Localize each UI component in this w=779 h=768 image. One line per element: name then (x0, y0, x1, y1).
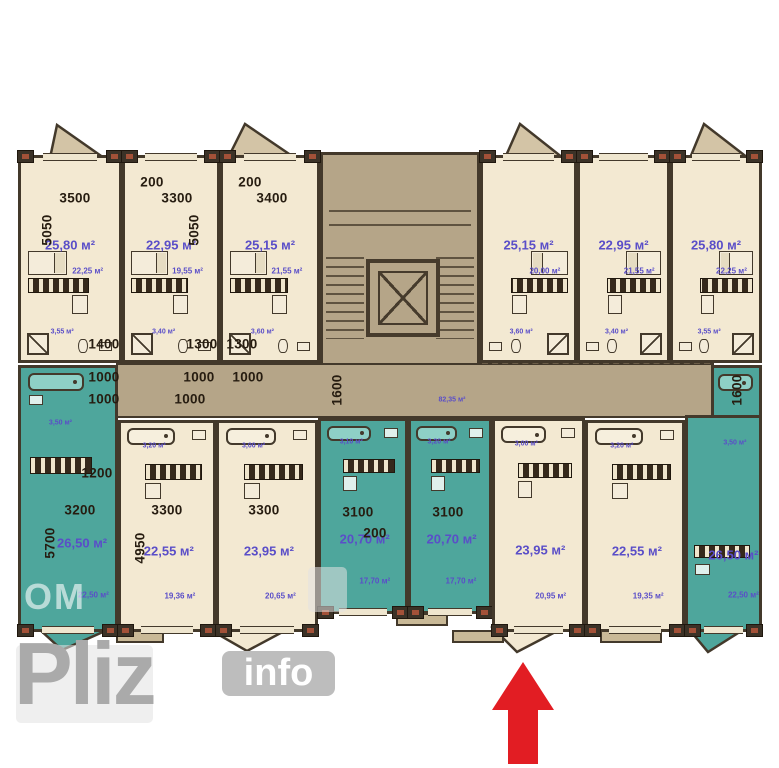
bath-label: 3,40 м² (605, 328, 628, 335)
apartment-unit-tl-3[interactable]: 25,15 м²21,55 м²3,60 м² (220, 155, 320, 363)
sub-label: 20,65 м² (265, 592, 296, 601)
window-icon (145, 153, 197, 161)
apartment-unit-tr-2[interactable]: 22,95 м²21,55 м²3,40 м² (577, 155, 670, 363)
area-label: 25,15 м² (245, 237, 295, 252)
window-icon (503, 153, 554, 161)
stairs-icon (436, 257, 474, 339)
dimension-label: 1200 (81, 466, 112, 481)
bath-label: 3,55 м² (698, 328, 721, 335)
bath-label: 3,20 м² (428, 438, 451, 445)
dimension-label: 200 (140, 175, 163, 190)
window-icon (609, 626, 662, 634)
dimension-label: 5050 (187, 214, 202, 245)
dimension-label: 3100 (432, 505, 463, 520)
apartment-unit-tr-3[interactable]: 25,80 м²22,25 м²3,55 м² (670, 155, 762, 363)
watermark-info-badge: info (222, 651, 335, 696)
area-label: 22,55 м² (144, 543, 194, 558)
dimension-label: 200 (363, 526, 386, 541)
bath-label: 3,60 м² (510, 328, 533, 335)
dimension-label: 5050 (40, 214, 55, 245)
bath-label: 3,20 м² (143, 442, 166, 449)
window-icon (692, 153, 740, 161)
apartment-unit-b-6[interactable]: 23,95 м²20,95 м²3,00 м² (492, 418, 585, 632)
stairs-icon (326, 257, 364, 339)
area-label: 26,50 м² (708, 548, 758, 563)
sub-label: 21,55 м² (271, 267, 302, 276)
area-label: 26,50 м² (57, 535, 107, 550)
apartment-unit-b-2[interactable]: 22,55 м²19,36 м²3,20 м² (118, 420, 216, 632)
sub-label: 19,36 м² (164, 592, 195, 601)
dimension-label: 1300 (226, 337, 257, 352)
bath-label: 3,00 м² (515, 440, 538, 447)
dimension-label: 1400 (88, 337, 119, 352)
area-label: 25,15 м² (503, 237, 553, 252)
window-icon (514, 626, 563, 634)
elevator-icon (366, 259, 440, 337)
floor-plan: 82,35 м² OM Pliz info 25,80 м²22,25 м²3,… (0, 0, 779, 768)
bath-label: 3,20 м² (610, 442, 633, 449)
window-icon (240, 626, 294, 634)
dimension-label: 1300 (186, 337, 217, 352)
dimension-label: 1000 (183, 370, 214, 385)
bath-label: 3,55 м² (51, 328, 74, 335)
watermark-tile (308, 567, 347, 612)
dimension-label: 3100 (342, 505, 373, 520)
bath-label: 3,00 м² (242, 442, 265, 449)
elevator-shaft-cross-icon (378, 271, 428, 325)
dimension-label: 3300 (161, 191, 192, 206)
sub-label: 20,95 м² (535, 591, 566, 600)
sub-label: 22,25 м² (716, 267, 747, 276)
watermark-om: OM (24, 576, 86, 618)
area-label: 22,55 м² (612, 543, 662, 558)
sub-label: 19,35 м² (633, 592, 664, 601)
dimension-label: 200 (238, 175, 261, 190)
dimension-label: 4950 (133, 532, 148, 563)
area-label: 23,95 м² (515, 542, 565, 557)
dimension-label: 3300 (151, 503, 182, 518)
dimension-label: 1600 (730, 374, 745, 405)
area-label: 25,80 м² (691, 237, 741, 252)
bath-label: 3,40 м² (152, 328, 175, 335)
red-arrow (486, 660, 566, 768)
dimension-label: 3400 (256, 191, 287, 206)
area-label: 22,95 м² (598, 237, 648, 252)
dimension-label: 1000 (88, 370, 119, 385)
dimension-label: 3200 (64, 503, 95, 518)
bath-label: 3,10 м² (340, 438, 363, 445)
apartment-unit-tl-1[interactable]: 25,80 м²22,25 м²3,55 м² (18, 155, 122, 363)
stair-landing (329, 210, 471, 226)
bath-label: 3,60 м² (251, 328, 274, 335)
window-icon (599, 153, 648, 161)
sub-label: 19,55 м² (172, 267, 203, 276)
apartment-unit-b-3[interactable]: 23,95 м²20,65 м²3,00 м² (216, 420, 318, 632)
dimension-label: 1000 (88, 392, 119, 407)
window-icon (428, 608, 472, 616)
stairwell (320, 152, 480, 363)
window-icon (43, 153, 98, 161)
bath-label: 3,50 м² (723, 440, 746, 447)
dimension-label: 5700 (43, 527, 58, 558)
apartment-unit-b-7[interactable]: 22,55 м²19,35 м²3,20 м² (585, 420, 685, 632)
dimension-label: 3300 (248, 503, 279, 518)
sub-label: 17,70 м² (445, 576, 476, 585)
dimension-label: 1000 (174, 392, 205, 407)
area-label: 23,95 м² (244, 543, 294, 558)
apartment-unit-b-8[interactable]: 26,50 м²22,50 м²3,50 м² (685, 415, 762, 632)
corridor-area-label: 82,35 м² (439, 397, 466, 404)
dimension-label: 1000 (232, 370, 263, 385)
sub-label: 20,00 м² (529, 267, 560, 276)
dimension-label: 1600 (330, 374, 345, 405)
sub-label: 22,50 м² (728, 591, 759, 600)
window-icon (704, 626, 744, 634)
window-icon (339, 608, 386, 616)
sub-label: 22,25 м² (72, 267, 103, 276)
watermark-pliz: Pliz (14, 630, 154, 718)
dimension-label: 3500 (59, 191, 90, 206)
sub-label: 21,55 м² (624, 267, 655, 276)
area-label: 20,70 м² (427, 531, 477, 546)
sub-label: 17,70 м² (359, 576, 390, 585)
window-icon (244, 153, 297, 161)
bath-label: 3,50 м² (49, 419, 72, 426)
apartment-unit-tr-1[interactable]: 25,15 м²20,00 м²3,60 м² (480, 155, 577, 363)
apartment-unit-tl-2[interactable]: 22,95 м²19,55 м²3,40 м² (122, 155, 220, 363)
